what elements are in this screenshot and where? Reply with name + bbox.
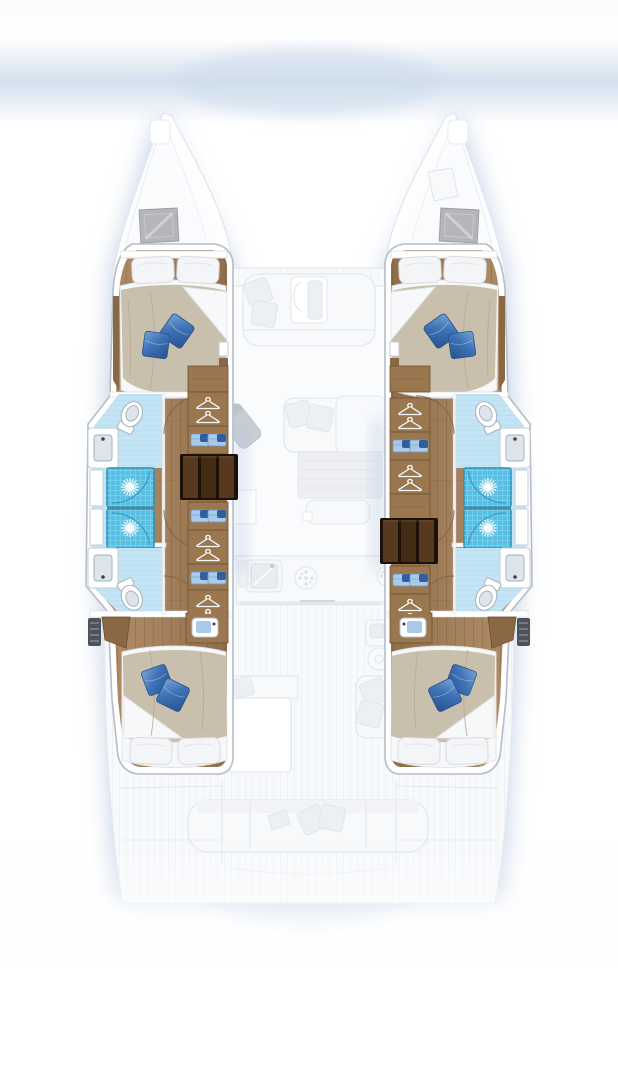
sail-bag-ghost — [428, 168, 458, 201]
boat-plan-svg — [0, 0, 618, 1080]
starboard-companionway-stairs — [380, 518, 438, 564]
cockpit-table — [229, 698, 291, 772]
starboard-wardrobe-strip — [390, 366, 430, 628]
galley-burner-1 — [295, 567, 317, 589]
salon-table — [298, 452, 382, 498]
forward-cockpit — [243, 274, 375, 346]
table-leg — [303, 512, 312, 521]
sky-band-center — [179, 48, 439, 116]
salon-bench — [306, 500, 370, 524]
port-companionway-stairs — [180, 454, 238, 500]
catamaran-layout-plan — [0, 0, 618, 1080]
